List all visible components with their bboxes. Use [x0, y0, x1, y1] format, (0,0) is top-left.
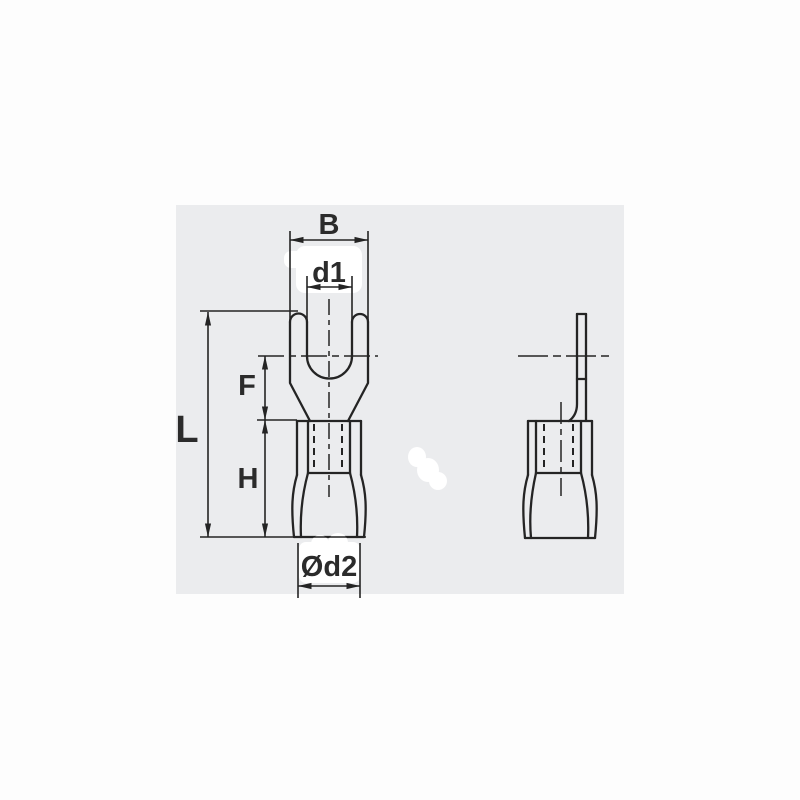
- label-l: L: [175, 409, 198, 451]
- label-h: H: [238, 463, 259, 495]
- patch-behind-d1-lobe: [284, 251, 304, 268]
- label-d1: d1: [312, 257, 346, 289]
- technical-drawing-fork-terminal: B d1 L F H Ød2: [0, 0, 800, 800]
- patch-bump-2: [328, 533, 348, 553]
- label-od2: Ød2: [301, 551, 357, 583]
- patch-blob-3: [429, 472, 447, 490]
- label-b: B: [319, 209, 340, 241]
- label-f: F: [238, 370, 256, 402]
